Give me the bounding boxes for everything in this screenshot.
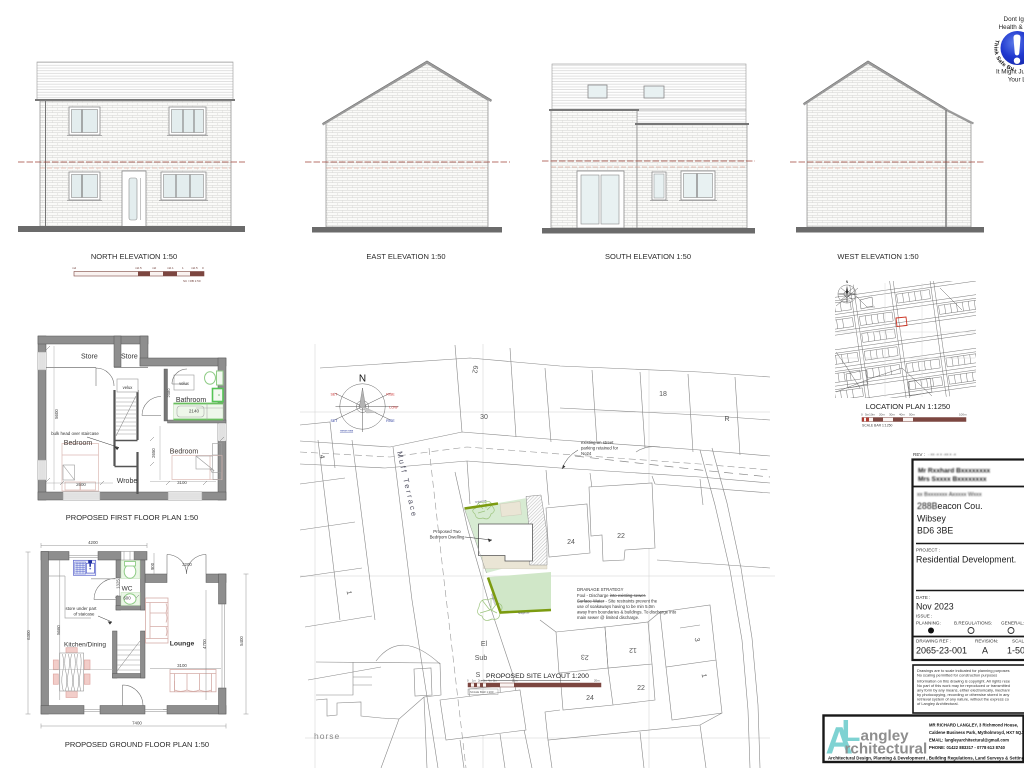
svg-text:3m: 3m <box>483 679 488 683</box>
svg-text:SET: SET <box>331 393 339 397</box>
svg-text:Bedroom: Bedroom <box>170 449 199 456</box>
svg-text:existing on street: existing on street <box>581 440 614 445</box>
svg-text:100m: 100m <box>959 413 967 417</box>
svg-text:4m: 4m <box>488 679 493 683</box>
svg-text:Mr Rxxhard Bxxxxxxxx: Mr Rxxhard Bxxxxxxxx <box>918 468 991 475</box>
svg-text:4700: 4700 <box>202 639 207 649</box>
svg-text:Wrobe: Wrobe <box>117 478 138 485</box>
svg-text:Lounge: Lounge <box>170 641 195 648</box>
svg-text:2140: 2140 <box>189 409 200 414</box>
svg-text:PROPOSED SITE LAYOUT 1:200: PROPOSED SITE LAYOUT 1:200 <box>486 673 589 680</box>
svg-text:velux: velux <box>123 385 134 390</box>
svg-text:DATE :: DATE : <box>916 595 930 600</box>
svg-text:2650: 2650 <box>151 448 156 458</box>
svg-text:1-50: 1-50 <box>1007 646 1024 656</box>
svg-text:WEST ELEVATION 1:50: WEST ELEVATION 1:50 <box>837 252 918 261</box>
svg-text:288Beacon Cou.: 288Beacon Cou. <box>917 501 983 511</box>
svg-text:22: 22 <box>637 685 645 692</box>
svg-text:RISE: RISE <box>386 393 395 397</box>
svg-text:velux: velux <box>179 381 190 386</box>
svg-text:RISE: RISE <box>386 419 395 423</box>
svg-text:parking retained for: parking retained for <box>581 446 619 451</box>
svg-text:5m10m: 5m10m <box>865 413 876 417</box>
svg-text:m2: m2 <box>72 266 76 270</box>
svg-text:24: 24 <box>567 539 575 546</box>
svg-text:62: 62 <box>470 365 478 374</box>
svg-text:of Langley Architectural.: of Langley Architectural. <box>917 701 959 706</box>
svg-text:Proposed Two: Proposed Two <box>433 529 461 534</box>
svg-text:Bedroom Dwelling: Bedroom Dwelling <box>430 535 465 540</box>
svg-text:50m: 50m <box>909 413 915 417</box>
svg-text:xx Bxxxxxxx Axxxxx Wxxx: xx Bxxxxxxx Axxxxx Wxxx <box>917 492 982 498</box>
svg-text:m0.1: m0.1 <box>167 266 174 270</box>
svg-text:Sub: Sub <box>475 655 488 662</box>
svg-text:of staicase: of staicase <box>74 612 96 617</box>
svg-text:2065-23-001: 2065-23-001 <box>916 646 967 656</box>
svg-text:7400: 7400 <box>132 721 142 726</box>
svg-text:Store: Store <box>81 354 98 361</box>
svg-text:main sewer @ limited discharge: main sewer @ limited discharge. <box>577 615 639 620</box>
svg-text:- xx -x x -xx x -x: - xx -x x -xx x -x <box>928 452 956 457</box>
svg-text:BD6 3BE: BD6 3BE <box>917 526 953 536</box>
svg-text:PROPOSED FIRST FLOOR PLAN 1:50: PROPOSED FIRST FLOOR PLAN 1:50 <box>66 513 198 522</box>
svg-text:PROJECT :: PROJECT : <box>916 548 940 553</box>
svg-text:El: El <box>481 641 488 648</box>
svg-text:SC / RB 1:50: SC / RB 1:50 <box>183 279 201 283</box>
svg-text:20m: 20m <box>594 679 600 683</box>
svg-text:5400: 5400 <box>239 636 244 646</box>
svg-text:30: 30 <box>480 414 488 421</box>
svg-text:WC: WC <box>122 586 133 593</box>
svg-text:SCALE BAR 1:1250: SCALE BAR 1:1250 <box>862 424 892 428</box>
svg-text:Mrs Sxxxx Bxxxxxxxx: Mrs Sxxxx Bxxxxxxxx <box>918 476 987 483</box>
svg-text:5660: 5660 <box>56 625 61 635</box>
svg-text:hedgerow: hedgerow <box>518 610 530 615</box>
svg-text:bulk head over staircase: bulk head over staircase <box>51 431 99 436</box>
svg-text:PLANNING:: PLANNING: <box>916 621 941 626</box>
svg-text:Foul - Discharge into existin: Foul - Discharge into existing sewer. <box>577 593 646 598</box>
svg-text:GENERAL:: GENERAL: <box>1001 621 1024 626</box>
svg-text:It Might Just Save: It Might Just Save <box>996 69 1024 76</box>
svg-text:5600: 5600 <box>54 409 59 419</box>
svg-text:Residential Development.: Residential Development. <box>916 555 1016 565</box>
svg-text:Store: Store <box>121 354 138 361</box>
svg-text:Caldene Business Park, Mytholm: Caldene Business Park, Mytholmroyd, HX7 … <box>929 730 1024 735</box>
svg-text:PROPOSED GROUND FLOOR PLAN 1:5: PROPOSED GROUND FLOOR PLAN 1:50 <box>65 740 209 749</box>
svg-text:Dont Ignore: Dont Ignore <box>1004 16 1024 23</box>
svg-text:DRAWING REF :: DRAWING REF : <box>916 639 951 644</box>
svg-text:18: 18 <box>659 391 667 398</box>
svg-text:PHONE: 01422 883317 - 0778 613: PHONE: 01422 883317 - 0778 613 8740 <box>929 745 1006 750</box>
svg-text:2080: 2080 <box>166 388 171 398</box>
svg-text:horse: horse <box>314 731 340 741</box>
svg-text:Bathroom: Bathroom <box>176 397 207 404</box>
svg-text:5m: 5m <box>493 679 498 683</box>
svg-text:2600: 2600 <box>76 482 86 487</box>
svg-text:10m: 10m <box>512 679 518 683</box>
svg-text:3100: 3100 <box>177 663 187 668</box>
svg-text:EMAIL: langleyarchitectural@gm: EMAIL: langleyarchitectural@gmail.com <box>929 738 1009 743</box>
svg-text:B.REGULATIONS:: B.REGULATIONS: <box>954 621 992 626</box>
svg-text:SET: SET <box>331 419 339 423</box>
svg-text:Wibsey: Wibsey <box>917 514 946 524</box>
svg-text:LOCATION PLAN 1:1250: LOCATION PLAN 1:1250 <box>866 402 950 411</box>
svg-text:SOUTH ELEVATION 1:50: SOUTH ELEVATION 1:50 <box>605 252 691 261</box>
svg-text:Your Life!: Your Life! <box>1008 77 1024 84</box>
svg-text:R: R <box>724 416 729 423</box>
svg-text:Health & Safety: Health & Safety <box>999 24 1024 31</box>
svg-text:900: 900 <box>150 562 155 570</box>
svg-text:DRAINAGE STRATEGY: DRAINAGE STRATEGY <box>577 587 624 592</box>
svg-text:No24: No24 <box>581 451 592 456</box>
svg-text:m0: m0 <box>152 266 156 270</box>
svg-text:REV :: REV : <box>913 452 925 457</box>
svg-text:20m: 20m <box>879 413 885 417</box>
svg-text:Architectural Design, Planning: Architectural Design, Planning & Develop… <box>828 756 1024 761</box>
svg-text:Bedroom: Bedroom <box>64 440 93 447</box>
svg-text:mean sea: mean sea <box>340 429 354 433</box>
svg-text:1325: 1325 <box>116 579 121 589</box>
svg-text:A: A <box>982 646 988 656</box>
svg-text:4200: 4200 <box>88 540 98 545</box>
svg-text:Kitchen/Dining: Kitchen/Dining <box>64 642 106 649</box>
svg-text:3200: 3200 <box>182 562 192 567</box>
svg-text:SCALE: SCALE <box>1012 639 1024 644</box>
svg-text:NORTH ELEVATION 1:50: NORTH ELEVATION 1:50 <box>91 252 177 261</box>
svg-text:ISSUE :: ISSUE : <box>916 614 932 619</box>
svg-text:m0.5: m0.5 <box>191 266 198 270</box>
svg-text:2m: 2m <box>478 679 483 683</box>
svg-text:40m: 40m <box>899 413 905 417</box>
svg-text:LOW: LOW <box>389 406 398 410</box>
svg-text:22: 22 <box>617 533 625 540</box>
svg-text:REVISION:: REVISION: <box>975 639 998 644</box>
svg-text:24: 24 <box>586 695 594 702</box>
svg-text:EAST ELEVATION 1:50: EAST ELEVATION 1:50 <box>366 252 445 261</box>
svg-text:Surface Water - Site restraint: Surface Water - Site restraints prevent … <box>577 599 658 604</box>
svg-text:No scaling permitted for const: No scaling permitted for construction pu… <box>917 673 997 678</box>
svg-text:m0.5: m0.5 <box>135 266 142 270</box>
svg-text:12: 12 <box>629 646 637 653</box>
svg-text:600: 600 <box>123 596 131 601</box>
svg-text:6300: 6300 <box>26 630 31 640</box>
svg-text:Nov 2023: Nov 2023 <box>916 602 954 612</box>
svg-text:30m: 30m <box>889 413 895 417</box>
svg-text:store under part: store under part <box>66 606 98 611</box>
svg-text:23: 23 <box>581 653 589 661</box>
svg-text:N: N <box>359 374 366 385</box>
svg-text:SCALE BAR 1:200: SCALE BAR 1:200 <box>470 690 494 694</box>
svg-text:MR RICHARD LANGLEY, 3 Richmond: MR RICHARD LANGLEY, 3 Richmond House, <box>929 723 1018 728</box>
svg-text:3100: 3100 <box>177 480 187 485</box>
svg-text:1m: 1m <box>472 679 477 683</box>
svg-text:away from boundaries & buildin: away from boundaries & buildings. To dis… <box>577 610 677 615</box>
svg-text:use of soakaways having to be: use of soakaways having to be min 5.0m <box>577 604 655 609</box>
